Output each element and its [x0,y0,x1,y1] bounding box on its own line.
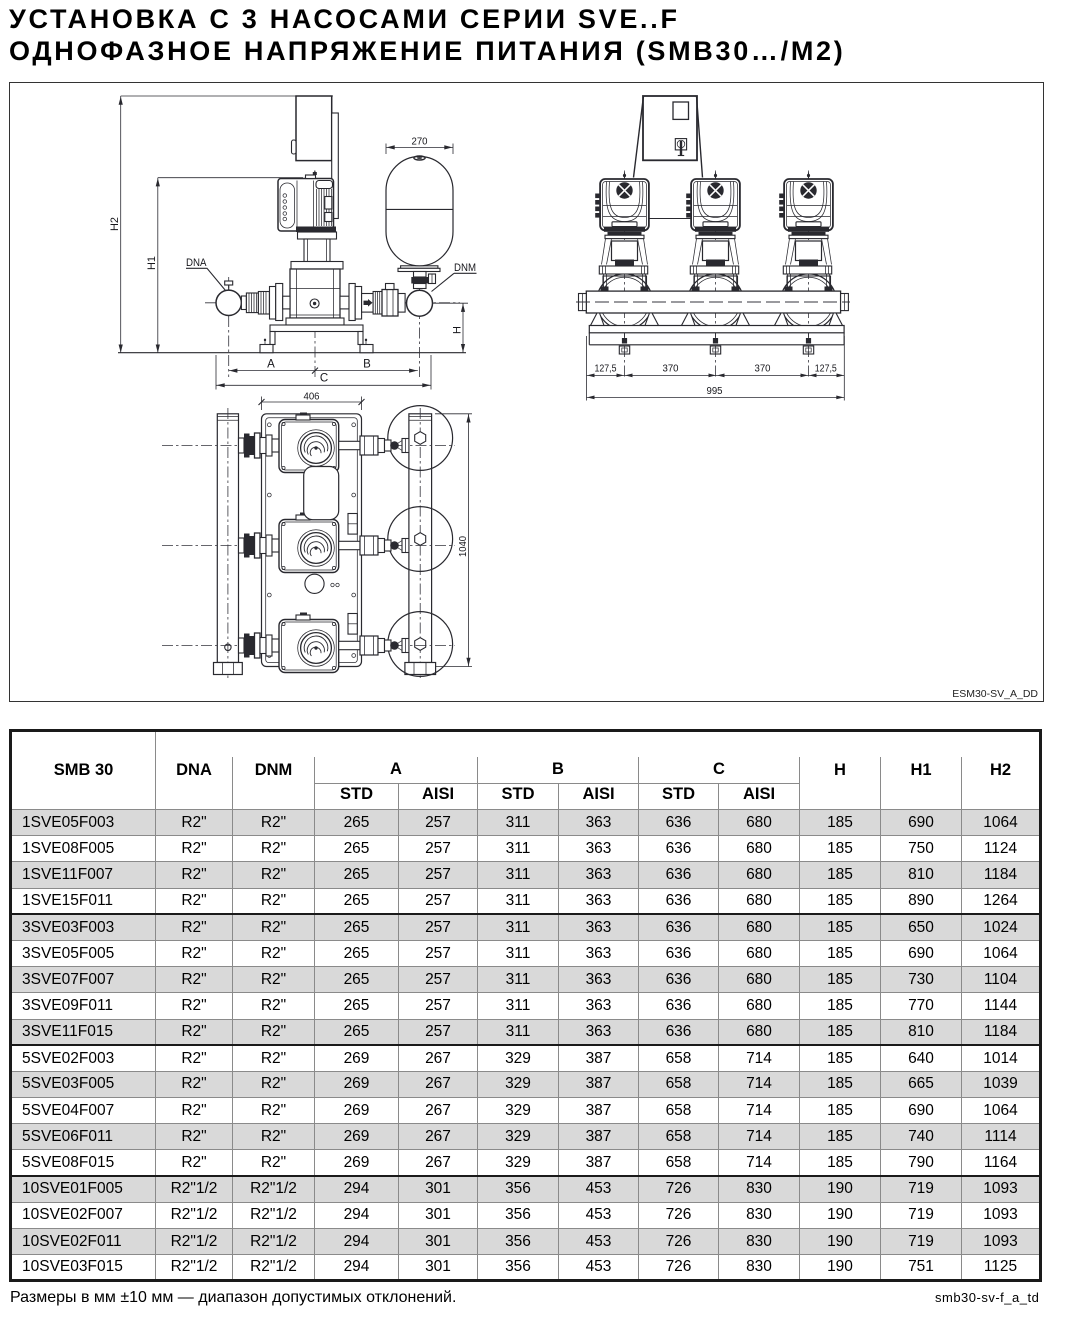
svg-text:DNA: DNA [186,257,207,269]
svg-text:A: A [267,358,275,370]
svg-text:H: H [452,326,464,334]
svg-text:H1: H1 [146,256,158,270]
svg-text:DNM: DNM [454,262,476,274]
svg-text:995: 995 [707,386,723,397]
svg-text:127,5: 127,5 [595,364,617,375]
svg-text:127,5: 127,5 [815,364,837,375]
svg-text:H2: H2 [109,217,121,231]
svg-text:406: 406 [304,391,320,402]
svg-text:270: 270 [412,137,428,148]
svg-text:B: B [363,358,371,370]
svg-text:370: 370 [663,364,679,375]
svg-text:1040: 1040 [458,536,469,557]
svg-text:C: C [320,373,328,385]
svg-text:370: 370 [755,364,771,375]
